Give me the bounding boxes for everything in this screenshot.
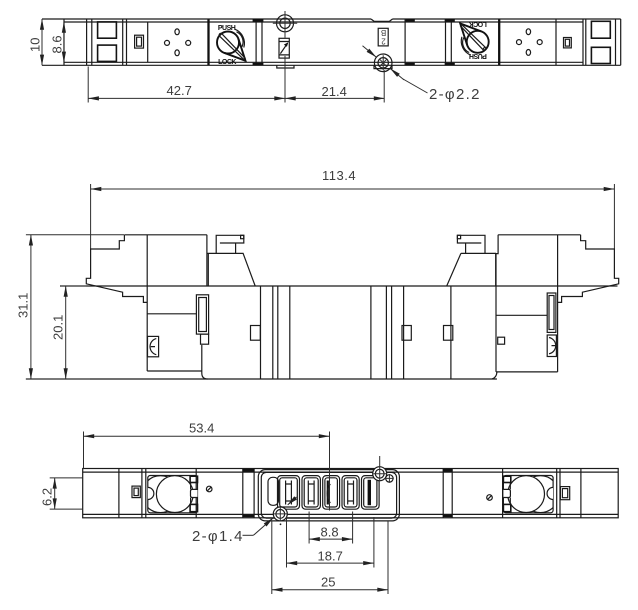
svg-text:8.6: 8.6 — [50, 35, 65, 53]
svg-text:25: 25 — [321, 575, 335, 590]
svg-text:LOCK: LOCK — [469, 20, 487, 27]
svg-text:B: B — [381, 28, 386, 37]
svg-text:18.7: 18.7 — [318, 549, 343, 564]
svg-text:20.1: 20.1 — [50, 315, 65, 340]
svg-text:8.8: 8.8 — [321, 525, 339, 540]
svg-text:53.4: 53.4 — [189, 421, 214, 436]
svg-text:113.4: 113.4 — [322, 168, 356, 183]
svg-text:2-φ1.4: 2-φ1.4 — [192, 528, 244, 545]
svg-text:21.4: 21.4 — [322, 84, 347, 99]
svg-text:2-φ2.2: 2-φ2.2 — [429, 86, 481, 103]
svg-text:10: 10 — [28, 38, 43, 52]
svg-text:42.7: 42.7 — [167, 83, 192, 98]
svg-text:31.1: 31.1 — [16, 293, 31, 318]
svg-text:6.2: 6.2 — [40, 488, 55, 506]
svg-text:LOCK: LOCK — [218, 59, 236, 66]
